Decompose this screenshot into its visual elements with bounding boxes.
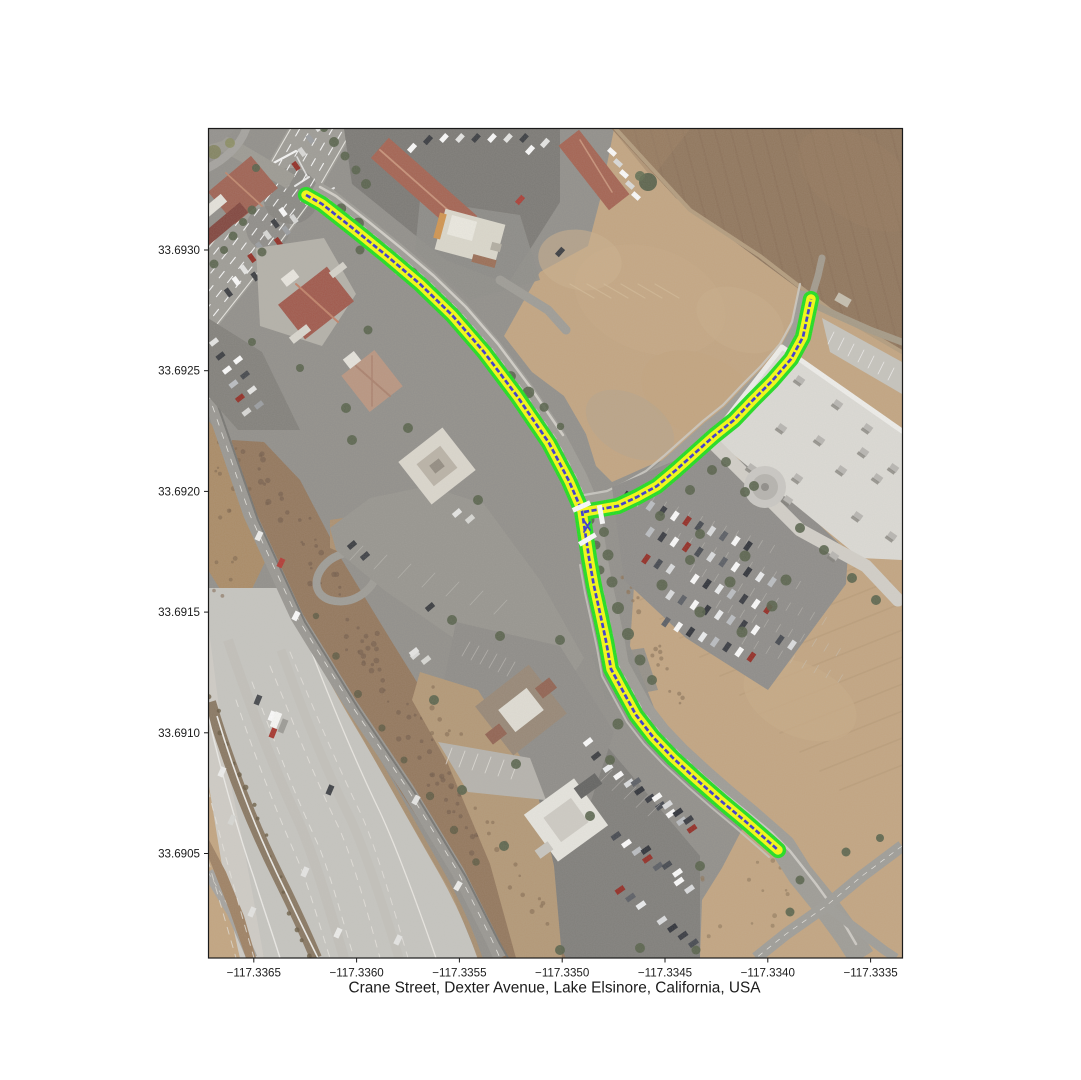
- svg-text:−117.3340: −117.3340: [741, 967, 795, 980]
- svg-text:33.6930: 33.6930: [158, 244, 200, 257]
- svg-text:33.6925: 33.6925: [158, 365, 200, 378]
- svg-text:33.6910: 33.6910: [158, 727, 200, 740]
- svg-text:−117.3365: −117.3365: [227, 967, 281, 980]
- svg-text:33.6920: 33.6920: [158, 485, 200, 498]
- svg-text:−117.3335: −117.3335: [843, 967, 897, 980]
- svg-text:Crane Street, Dexter Avenue, L: Crane Street, Dexter Avenue, Lake Elsino…: [348, 980, 761, 997]
- svg-text:−117.3355: −117.3355: [432, 967, 486, 980]
- svg-text:33.6915: 33.6915: [158, 606, 200, 619]
- svg-text:33.6905: 33.6905: [158, 848, 200, 861]
- svg-text:−117.3360: −117.3360: [329, 967, 383, 980]
- svg-text:−117.3345: −117.3345: [638, 967, 692, 980]
- svg-text:−117.3350: −117.3350: [535, 967, 589, 980]
